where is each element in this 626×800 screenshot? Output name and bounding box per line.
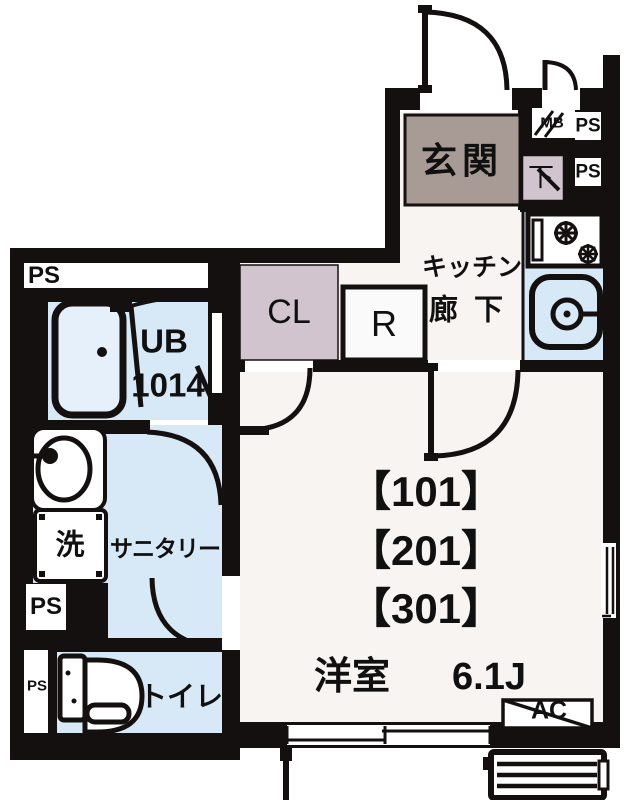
main-window	[287, 725, 490, 745]
kitchen-label-line1: キッチン	[422, 256, 522, 281]
unit-number-301: 【301】	[349, 588, 503, 630]
ub-wall-slot	[211, 312, 223, 394]
side-window	[601, 543, 616, 618]
balcony-divider	[280, 748, 292, 800]
ac-label: AC	[531, 699, 567, 724]
ps-label-2: PS	[575, 163, 600, 182]
shoe-box-label: 下	[528, 164, 554, 190]
toilet-label: トイレ	[139, 683, 223, 711]
western-room-size: 6.1J	[452, 658, 526, 696]
ps-label-bottom: PS	[27, 679, 47, 694]
mb-label: MB	[540, 116, 563, 131]
ps-label-1: PS	[575, 117, 600, 136]
floor-plan: 玄関 MB PS 下 PS キッチン 廊下 CL R PS UB 1014 サニ…	[0, 0, 626, 800]
wash-basin	[28, 428, 105, 510]
unit-bath-label-line1: UB	[140, 325, 188, 358]
unit-number-201: 【201】	[349, 530, 503, 572]
washer-label: 洗	[55, 532, 84, 561]
kitchen-label-line2: 廊下	[429, 297, 519, 326]
mb-door	[545, 60, 576, 90]
ps-label-top: PS	[28, 264, 60, 288]
bathtub	[55, 302, 132, 415]
gas-stove	[528, 214, 602, 266]
sanitary-label: サニタリー	[110, 538, 220, 561]
ps-label-mid: PS	[30, 595, 62, 619]
western-room-label: 洋室	[314, 658, 390, 696]
unit-bath-label-line2: 1014	[131, 369, 204, 402]
closet-label: CL	[267, 295, 310, 329]
stove-burner-2	[578, 244, 598, 264]
entrance-door	[418, 5, 507, 93]
refrigerator-label: R	[371, 306, 397, 342]
ac-outdoor-unit	[483, 752, 608, 798]
toilet-fixture	[60, 656, 142, 732]
genkan-label: 玄関	[421, 143, 503, 179]
unit-number-101: 【101】	[349, 471, 503, 513]
